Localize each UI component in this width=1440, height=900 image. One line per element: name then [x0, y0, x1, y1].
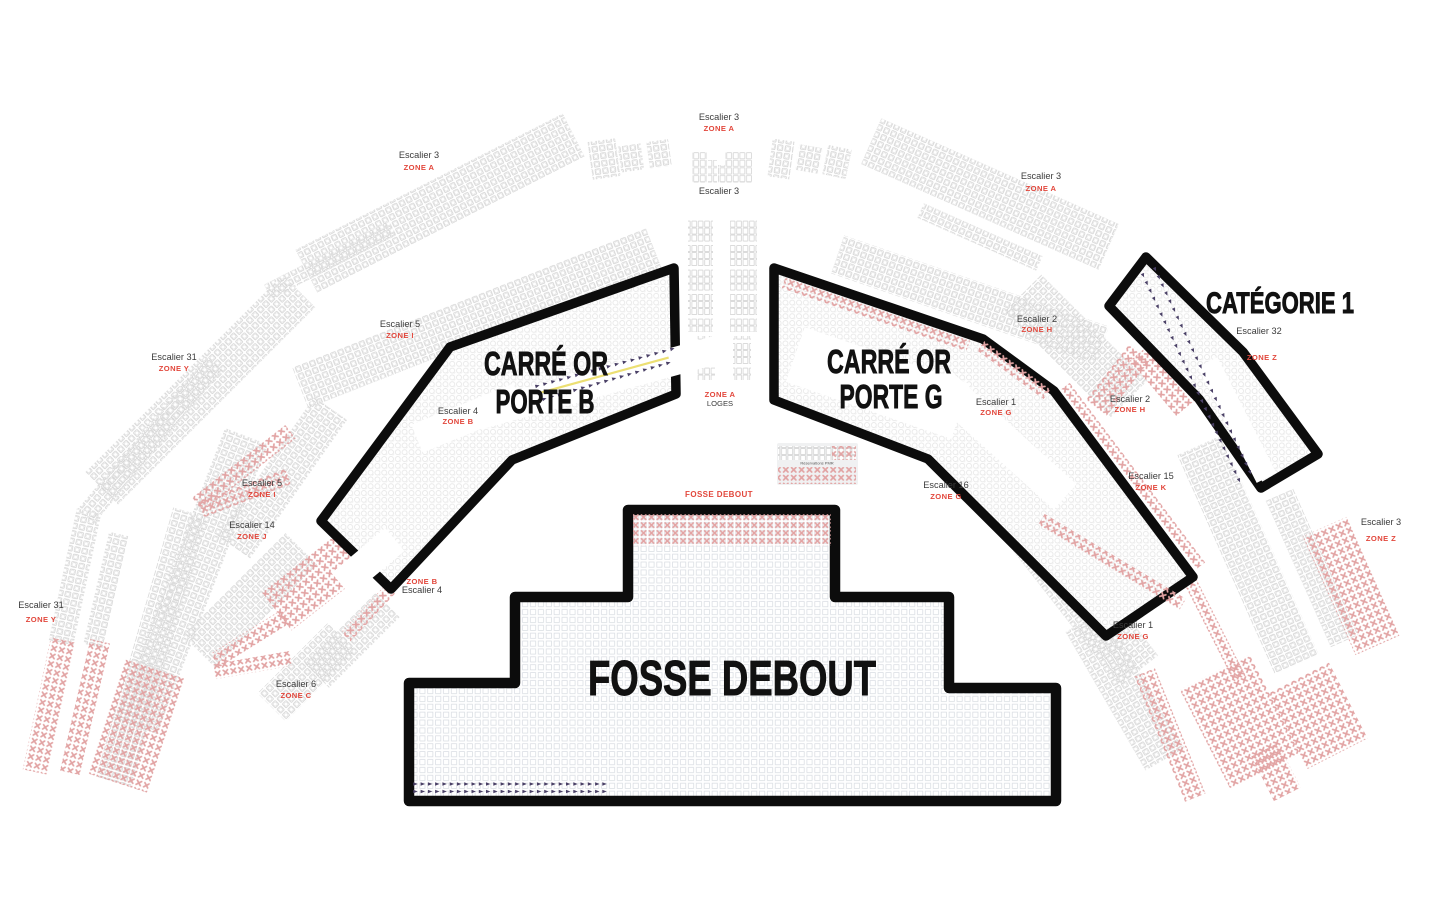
- svg-text:Escalier 5: Escalier 5: [380, 319, 420, 329]
- svg-text:FOSSE DEBOUT: FOSSE DEBOUT: [588, 652, 876, 706]
- svg-text:CATÉGORIE 1: CATÉGORIE 1: [1206, 286, 1354, 320]
- svg-text:Escalier 1: Escalier 1: [1113, 620, 1153, 630]
- svg-text:ZONE H: ZONE H: [1021, 325, 1052, 334]
- svg-text:ZONE B: ZONE B: [442, 417, 473, 426]
- svg-text:Escalier 4: Escalier 4: [402, 585, 442, 595]
- svg-text:ZONE A: ZONE A: [404, 163, 435, 172]
- svg-text:Escalier 5: Escalier 5: [242, 478, 282, 488]
- svg-text:ZONE G: ZONE G: [980, 408, 1012, 417]
- svg-text:ZONE Z: ZONE Z: [1247, 353, 1277, 362]
- svg-text:Escalier 3: Escalier 3: [1361, 517, 1401, 527]
- svg-text:ZONE K: ZONE K: [1135, 483, 1166, 492]
- svg-text:ZONE G: ZONE G: [930, 492, 962, 501]
- svg-text:Escalier 2: Escalier 2: [1110, 394, 1150, 404]
- svg-text:ZONE I: ZONE I: [248, 490, 276, 499]
- svg-text:Escalier 2: Escalier 2: [1017, 314, 1057, 324]
- svg-text:Escalier 32: Escalier 32: [1236, 326, 1281, 336]
- svg-text:ZONE J: ZONE J: [237, 532, 267, 541]
- svg-text:PORTE B: PORTE B: [496, 383, 595, 420]
- svg-text:FOSSE DEBOUT: FOSSE DEBOUT: [685, 490, 753, 499]
- svg-text:ZONE A: ZONE A: [705, 390, 736, 399]
- svg-text:ZONE Y: ZONE Y: [159, 364, 190, 373]
- svg-text:ZONE A: ZONE A: [1026, 184, 1057, 193]
- svg-text:ZONE Z: ZONE Z: [1366, 534, 1396, 543]
- svg-text:Escalier 1: Escalier 1: [976, 397, 1016, 407]
- svg-text:Escalier 31: Escalier 31: [18, 600, 63, 610]
- svg-text:Escalier 16: Escalier 16: [923, 480, 968, 490]
- svg-text:CARRÉ OR: CARRÉ OR: [484, 345, 608, 382]
- svg-text:PORTE G: PORTE G: [840, 378, 943, 415]
- svg-text:Escalier 3: Escalier 3: [1021, 171, 1061, 181]
- svg-text:Escalier 15: Escalier 15: [1128, 471, 1173, 481]
- svg-text:Réservations PMR: Réservations PMR: [800, 461, 833, 466]
- svg-text:Escalier 4: Escalier 4: [438, 406, 478, 416]
- svg-text:LOGES: LOGES: [707, 399, 733, 408]
- svg-text:CARRÉ OR: CARRÉ OR: [827, 343, 951, 380]
- svg-text:ZONE H: ZONE H: [1114, 405, 1145, 414]
- svg-text:ZONE Y: ZONE Y: [26, 615, 57, 624]
- svg-text:Escalier 3: Escalier 3: [399, 150, 439, 160]
- svg-text:Escalier 3: Escalier 3: [699, 112, 739, 122]
- svg-text:Escalier 3: Escalier 3: [699, 186, 739, 196]
- svg-text:Escalier 14: Escalier 14: [229, 520, 274, 530]
- svg-text:ZONE G: ZONE G: [1117, 632, 1149, 641]
- svg-text:ZONE I: ZONE I: [386, 331, 414, 340]
- svg-text:Escalier 31: Escalier 31: [151, 352, 196, 362]
- svg-text:ZONE A: ZONE A: [704, 124, 735, 133]
- svg-text:Escalier 6: Escalier 6: [276, 679, 316, 689]
- svg-text:ZONE C: ZONE C: [280, 691, 311, 700]
